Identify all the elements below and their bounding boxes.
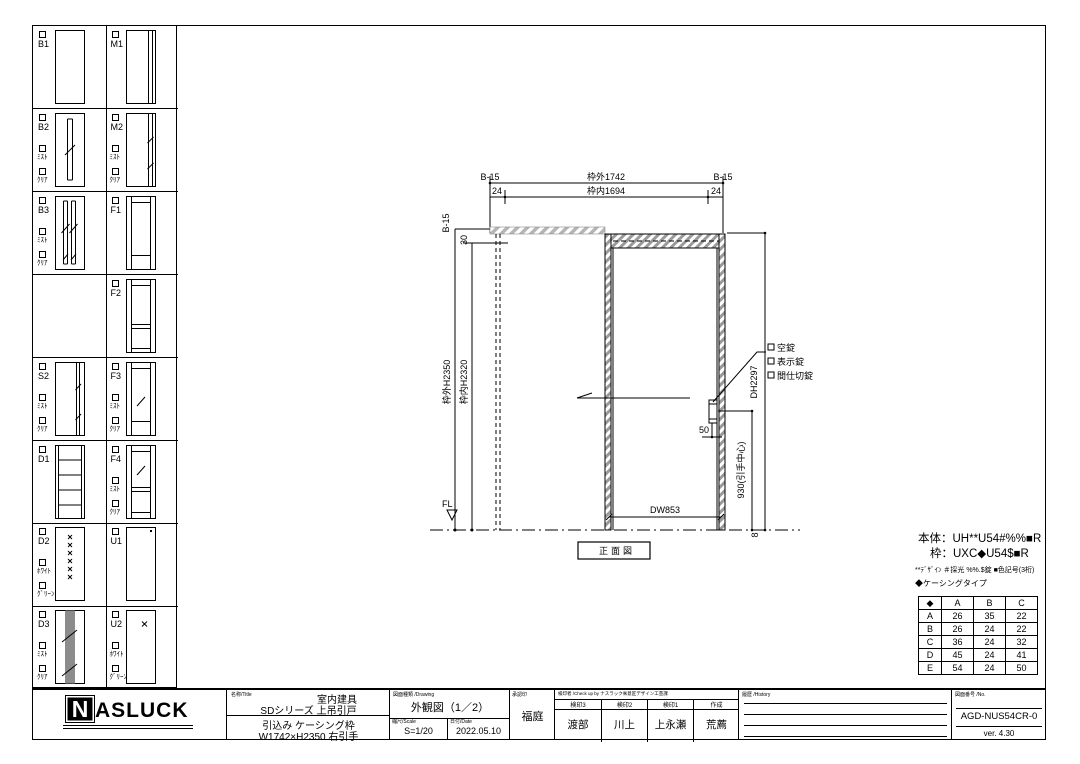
casing-type-note: ◆ケーシングタイプ [915, 578, 987, 589]
check-column-label: 検印2 [602, 700, 647, 709]
dim-24-right: 24 [711, 186, 721, 196]
dim-frame-outer-width: 枠外1742 [587, 171, 625, 182]
lock-label-1: 空錠 [777, 342, 795, 353]
dim-pull-center: 930(引手中心) [735, 441, 746, 498]
check-column-divider [602, 709, 647, 710]
size-table-cell: 50 [1006, 662, 1038, 675]
size-table-header: A [942, 597, 974, 610]
drawing-number: AGD-NUS54CR-0 [952, 711, 1046, 722]
check-column-1: 検印3渡部 [555, 699, 601, 742]
lock-options: 空錠 表示錠 間仕切錠 [713, 342, 813, 402]
dim-frame-outer-height: 枠外H2350 [441, 360, 452, 405]
size-table: ◆ A B C A263522B262422C362432D452441E542… [918, 596, 1038, 675]
frame-code-note: 枠：UXC◆U54$■R [930, 545, 1029, 561]
dim-8: 8 [750, 532, 760, 537]
size-table-row: E542450 [919, 662, 1038, 675]
front-view-caption: 正面図 [578, 542, 650, 559]
check-column-2: 検印2川上 [601, 699, 647, 742]
size-table-header: ◆ [919, 597, 942, 610]
check-column-divider [555, 709, 601, 710]
size-table-cell: 26 [942, 610, 974, 623]
size-table-body: A263522B262422C362432D452441E542450 [919, 610, 1038, 675]
door-width-dimension: DW853 [606, 505, 724, 520]
check-section: 検印者 /Check up by ナスラック㈱意匠デザイン工芸課 検印3渡部検印… [554, 690, 738, 739]
drawing-type-cell: 図面種類 /Drawing 外観図（1／2） 縮尺/Scale S=1/20 日… [389, 690, 509, 739]
size-table-cell: A [919, 610, 942, 623]
size-table-cell: 41 [1006, 649, 1038, 662]
drawing-sheet: B1M1B2ﾐｽﾄｸﾘｱM2ﾐｽﾄｸﾘｱB3ﾐｽﾄｸﾘｱF1F2S2ﾐｽﾄｸﾘｱ… [0, 0, 1080, 764]
product-spec-2: W1742×H2350 右引手 [227, 728, 390, 743]
logo-cell: NASLUCK [33, 690, 226, 739]
body-code-note: 本体：UH**U54#%%■R [918, 530, 1041, 546]
checker-name: 荒薦 [694, 717, 739, 732]
history-line [744, 703, 947, 704]
lock-checkbox-1 [768, 344, 774, 350]
number-line-top [956, 708, 1042, 709]
size-table-cell: 22 [1006, 623, 1038, 636]
dim-50: 50 [699, 425, 709, 435]
size-table-cell: 26 [942, 623, 974, 636]
check-column-label: 作成 [694, 700, 739, 709]
drawing-number-cell: 図面番号 /No. AGD-NUS54CR-0 ver. 4.30 [951, 690, 1045, 739]
date-value: 2022.05.10 [447, 726, 510, 736]
check-columns: 検印3渡部検印2川上検印1上永瀬作成荒薦 [555, 690, 739, 739]
name-header: 名称/Title [231, 693, 252, 698]
floor-label: FL [442, 499, 453, 509]
size-table-header: B [974, 597, 1006, 610]
size-table-cell: 45 [942, 649, 974, 662]
history-line [744, 725, 947, 726]
size-table-cell: 24 [974, 662, 1006, 675]
checker-name: 川上 [602, 717, 647, 732]
date-header: 日付/Date [450, 720, 472, 725]
drawing-type-header: 図面種類 /Drawing [393, 693, 434, 698]
lock-checkbox-2 [768, 358, 774, 364]
door-frame [605, 234, 725, 530]
caption-label: 正面図 [599, 546, 635, 556]
top-dimensions: B-15 枠外1742 B-15 24 枠内1694 24 [480, 171, 732, 233]
size-table-cell: B [919, 623, 942, 636]
dim-30: 30 [459, 235, 469, 245]
version: ver. 4.30 [952, 729, 1046, 738]
size-table-row: C362432 [919, 636, 1038, 649]
size-table-cell: 24 [974, 636, 1006, 649]
history-line [744, 736, 947, 737]
size-table-cell: 54 [942, 662, 974, 675]
left-dimensions: B-15 30 枠外H2350 枠内H2320 [441, 213, 508, 531]
dim-b15-right: B-15 [713, 172, 732, 182]
dim-b15-side: B-15 [441, 213, 451, 232]
approval-header: 承認印 [512, 693, 527, 698]
size-table-cell: 36 [942, 636, 974, 649]
size-table-cell: 24 [974, 623, 1006, 636]
size-table-cell: E [919, 662, 942, 675]
history-cell: 履歴 /History [738, 690, 951, 739]
dim-frame-inner-height: 枠内H2320 [458, 360, 469, 405]
floor-line: FL [430, 499, 800, 530]
dim-frame-inner-width: 枠内1694 [587, 185, 625, 196]
title-cell: 名称/Title 室内建具 SDシリーズ 上吊引戸 引込み ケーシング枠 W17… [226, 690, 389, 739]
size-table-cell: 32 [1006, 636, 1038, 649]
pocket-hidden-lines [490, 227, 605, 530]
logo-wordmark: ASLUCK [95, 699, 189, 722]
size-table-header: C [1006, 597, 1038, 610]
history-header: 履歴 /History [742, 693, 770, 698]
history-line [744, 714, 947, 715]
scale-header: 縮尺/Scale [392, 720, 416, 725]
size-table-cell: C [919, 636, 942, 649]
checker-name: 渡部 [555, 717, 601, 732]
dim-door-width: DW853 [650, 505, 680, 515]
check-column-label: 検印1 [648, 700, 693, 709]
code-legend-note: **ﾃﾞｻﾞｲﾝ ＃採光 %%.$錠 ■色記号(3桁) [915, 565, 1034, 575]
check-column-label: 検印3 [555, 700, 601, 709]
size-table-row: D452441 [919, 649, 1038, 662]
size-table-row: B262422 [919, 623, 1038, 636]
lock-checkbox-3 [768, 372, 774, 378]
size-table-cell: 22 [1006, 610, 1038, 623]
check-column-3: 検印1上永瀬 [647, 699, 693, 742]
size-table-header-row: ◆ A B C [919, 597, 1038, 610]
size-table-cell: 35 [974, 610, 1006, 623]
title-divider [227, 715, 390, 716]
dim-b15-left: B-15 [480, 172, 499, 182]
scale-value: S=1/20 [390, 726, 447, 736]
title-block: NASLUCK 名称/Title 室内建具 SDシリーズ 上吊引戸 引込み ケー… [32, 688, 1046, 740]
drawing-type: 外観図（1／2） [390, 699, 510, 715]
drawing-number-header: 図面番号 /No. [955, 693, 986, 698]
logo-n-mark: N [65, 695, 95, 723]
dim-24-left: 24 [492, 186, 502, 196]
check-column-4: 作成荒薦 [693, 699, 739, 742]
slide-direction-arrow [577, 393, 690, 398]
check-column-divider [648, 709, 693, 710]
checker-name: 上永瀬 [648, 717, 693, 732]
check-column-divider [694, 709, 739, 710]
size-table-cell: D [919, 649, 942, 662]
naslock-logo: NASLUCK [63, 695, 193, 729]
number-line-bottom [956, 726, 1042, 727]
lock-label-2: 表示錠 [777, 356, 804, 367]
dim-dh: DH2297 [749, 365, 759, 398]
approval-cell: 承認印 福庭 [509, 690, 554, 739]
size-table-cell: 24 [974, 649, 1006, 662]
lock-label-3: 間仕切錠 [777, 370, 813, 381]
size-table-row: A263522 [919, 610, 1038, 623]
approver-name: 福庭 [510, 708, 555, 724]
